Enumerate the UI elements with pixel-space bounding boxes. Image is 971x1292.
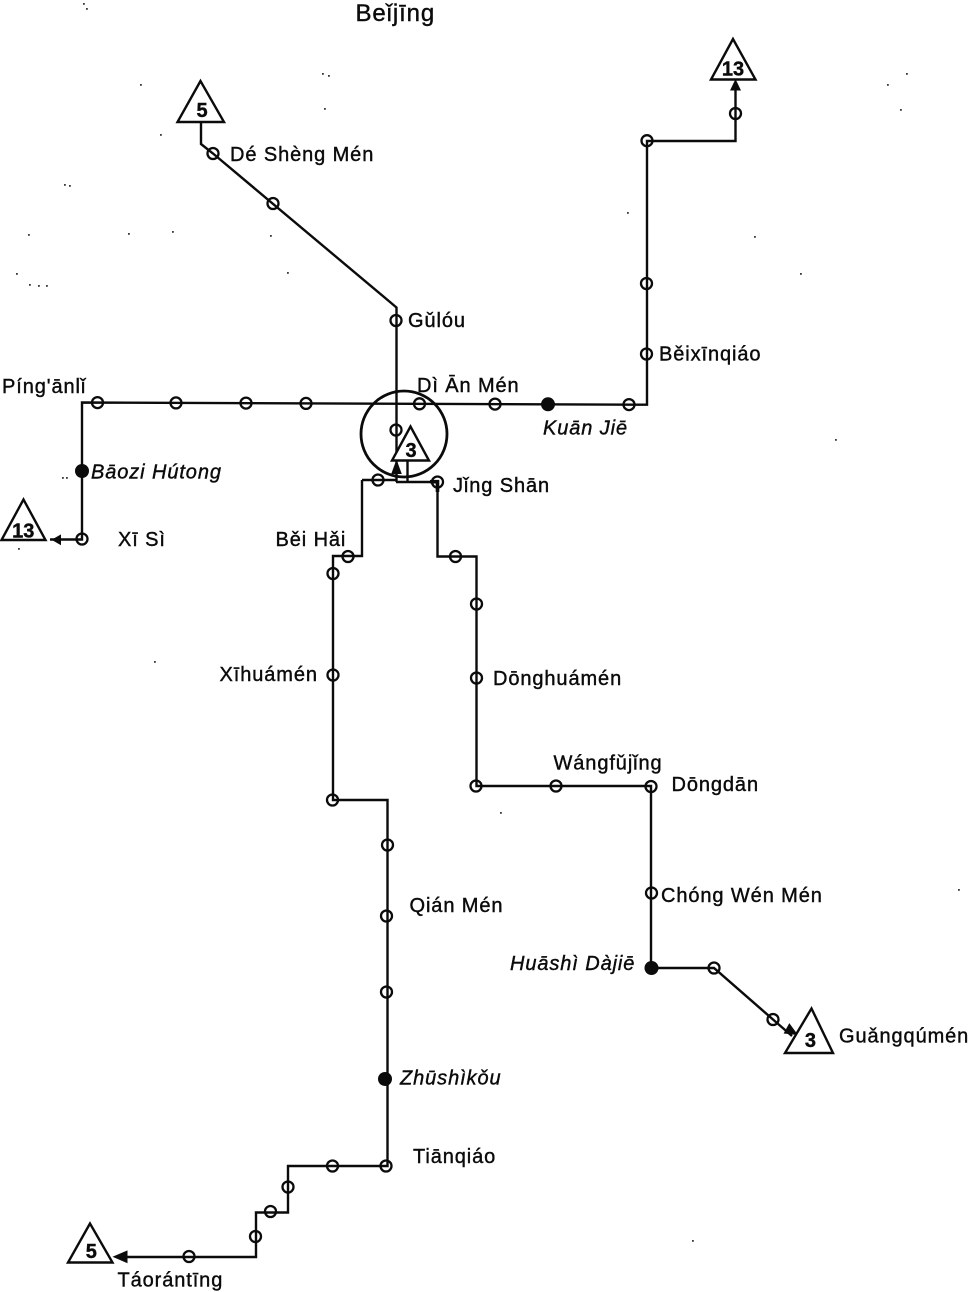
svg-text:Gǔlóu: Gǔlóu — [408, 310, 466, 332]
svg-text:Bāozi Hútong: Bāozi Hútong — [91, 462, 222, 484]
svg-text:Zhūshìkǒu: Zhūshìkǒu — [399, 1068, 502, 1090]
svg-text:13: 13 — [12, 521, 34, 543]
svg-text:Xī Sì: Xī Sì — [118, 529, 166, 551]
svg-text:Kuān Jiē: Kuān Jiē — [543, 418, 628, 440]
svg-text:Běi Hǎi: Běi Hǎi — [276, 529, 347, 551]
svg-text:Qián Mén: Qián Mén — [410, 895, 504, 917]
svg-text:Běixīnqiáo: Běixīnqiáo — [659, 344, 761, 366]
svg-text:13: 13 — [722, 59, 744, 81]
svg-text:Tiānqiáo: Tiānqiáo — [413, 1146, 496, 1168]
svg-text:Wángfǔjǐng: Wángfǔjǐng — [554, 753, 663, 775]
svg-text:Xīhuámén: Xīhuámén — [220, 664, 318, 686]
svg-text:Chóng Wén Mén: Chóng Wén Mén — [661, 885, 823, 907]
svg-text:3: 3 — [405, 440, 416, 462]
svg-text:Dì Ān Mén: Dì Ān Mén — [417, 374, 520, 397]
svg-text:5: 5 — [196, 100, 207, 122]
svg-text:Dōngdān: Dōngdān — [672, 774, 759, 796]
svg-text:3: 3 — [805, 1030, 816, 1052]
svg-text:Jǐng Shān: Jǐng Shān — [453, 475, 550, 497]
svg-text:Guǎngqúmén: Guǎngqúmén — [839, 1026, 969, 1048]
svg-text:5: 5 — [86, 1241, 97, 1263]
svg-text:Táorántīng: Táorántīng — [118, 1270, 224, 1292]
svg-text:Beǐjīng: Beǐjīng — [356, 0, 436, 27]
svg-text:Píng'ānlǐ: Píng'ānlǐ — [2, 376, 87, 398]
svg-text:Huāshì Dàjiē: Huāshì Dàjiē — [510, 953, 635, 975]
svg-text:Dé Shèng Mén: Dé Shèng Mén — [230, 144, 374, 166]
svg-text:Dōnghuámén: Dōnghuámén — [493, 668, 622, 690]
